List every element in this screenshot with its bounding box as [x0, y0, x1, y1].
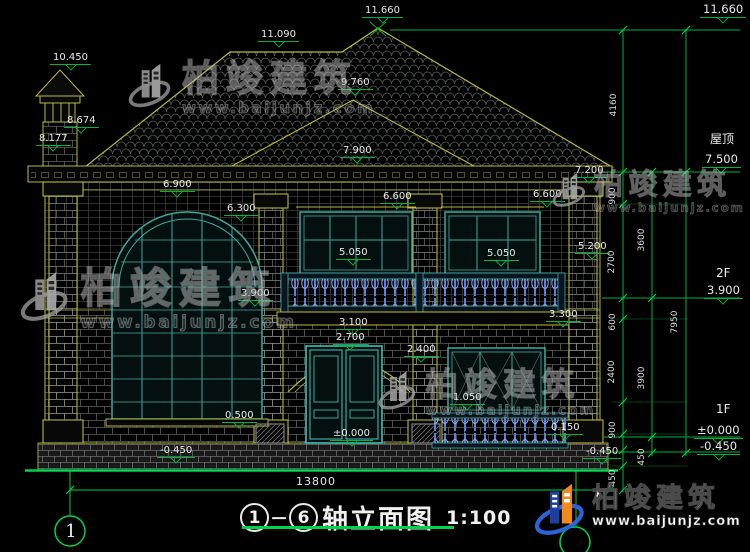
watermark-url: www.baijunjz.com	[594, 200, 745, 214]
footer-logo-icon	[534, 478, 588, 542]
watermark-url: www.baijunjz.com	[80, 312, 296, 332]
title-text: 轴立面图	[322, 499, 434, 536]
footer-brand: 柏竣建筑	[592, 484, 741, 514]
watermark: 柏竣建筑 www.baijunjz.com	[378, 368, 596, 418]
chimney	[36, 70, 84, 167]
elevation-drawing-canvas: 10.4508.6748.17711.09011.6609.7607.9007.…	[0, 0, 750, 552]
watermark-url: www.baijunjz.com	[426, 402, 596, 418]
watermark: 柏竣建筑 www.baijunjz.com	[128, 60, 375, 117]
watermark-brand: 柏竣建筑	[182, 60, 375, 99]
total-width-dimension: 13800	[296, 475, 336, 488]
footer-url: www.baijunjz.com	[592, 514, 741, 529]
watermark-brand: 柏竣建筑	[426, 368, 596, 402]
watermark-brand: 柏竣建筑	[594, 170, 745, 200]
balcony	[277, 273, 569, 325]
vent-left	[256, 424, 284, 443]
watermark-brand: 柏竣建筑	[80, 268, 296, 312]
watermark-logo-icon	[20, 268, 72, 326]
drawing-title: 1 － 6 轴立面图 1:100	[240, 499, 512, 536]
watermark-logo-icon	[552, 170, 588, 211]
footer-logo: 柏竣建筑 www.baijunjz.com	[534, 478, 741, 542]
eave-cornice	[28, 166, 612, 182]
watermark: 柏竣建筑 www.baijunjz.com	[552, 170, 745, 214]
watermark-logo-icon	[378, 368, 418, 414]
watermark: 柏竣建筑 www.baijunjz.com	[20, 268, 297, 332]
title-underline	[242, 526, 454, 529]
watermark-url: www.baijunjz.com	[182, 99, 375, 117]
title-scale: 1:100	[446, 507, 511, 529]
axis-bubble-1-number: 1	[62, 521, 80, 542]
watermark-logo-icon	[128, 60, 174, 112]
